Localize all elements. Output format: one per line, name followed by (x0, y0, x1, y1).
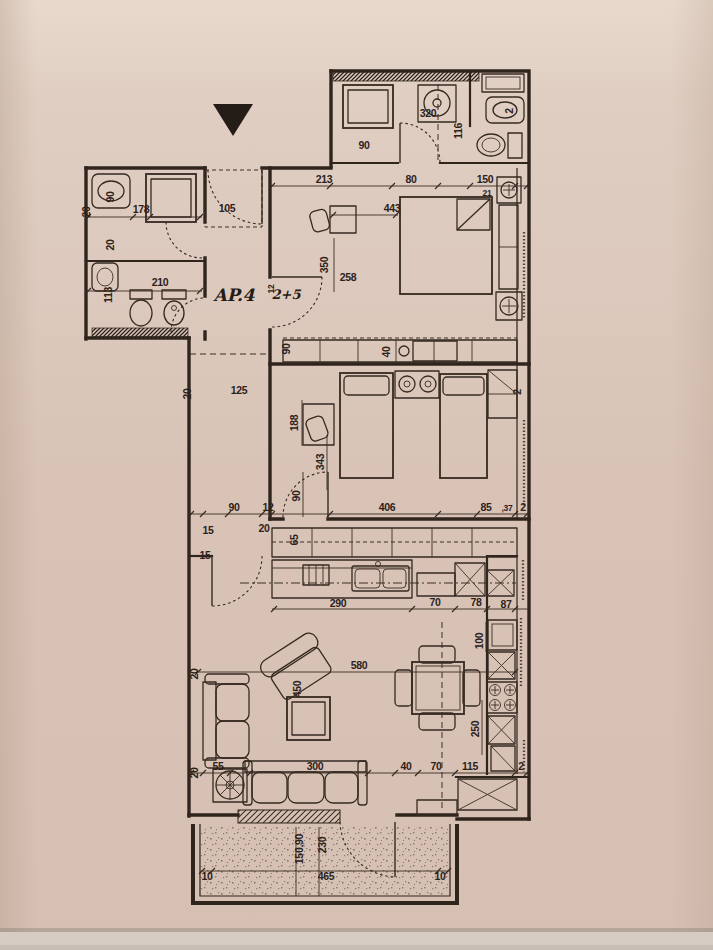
scan-bottom-edge (0, 945, 713, 950)
scan-shadow-line (0, 928, 713, 932)
page-vignette (0, 0, 713, 950)
floor-plan-scan: 90 320 116 2 213 80 150 21 443 178 105 2… (0, 0, 713, 950)
floor-plan-drawing: 90 320 116 2 213 80 150 21 443 178 105 2… (0, 0, 713, 950)
